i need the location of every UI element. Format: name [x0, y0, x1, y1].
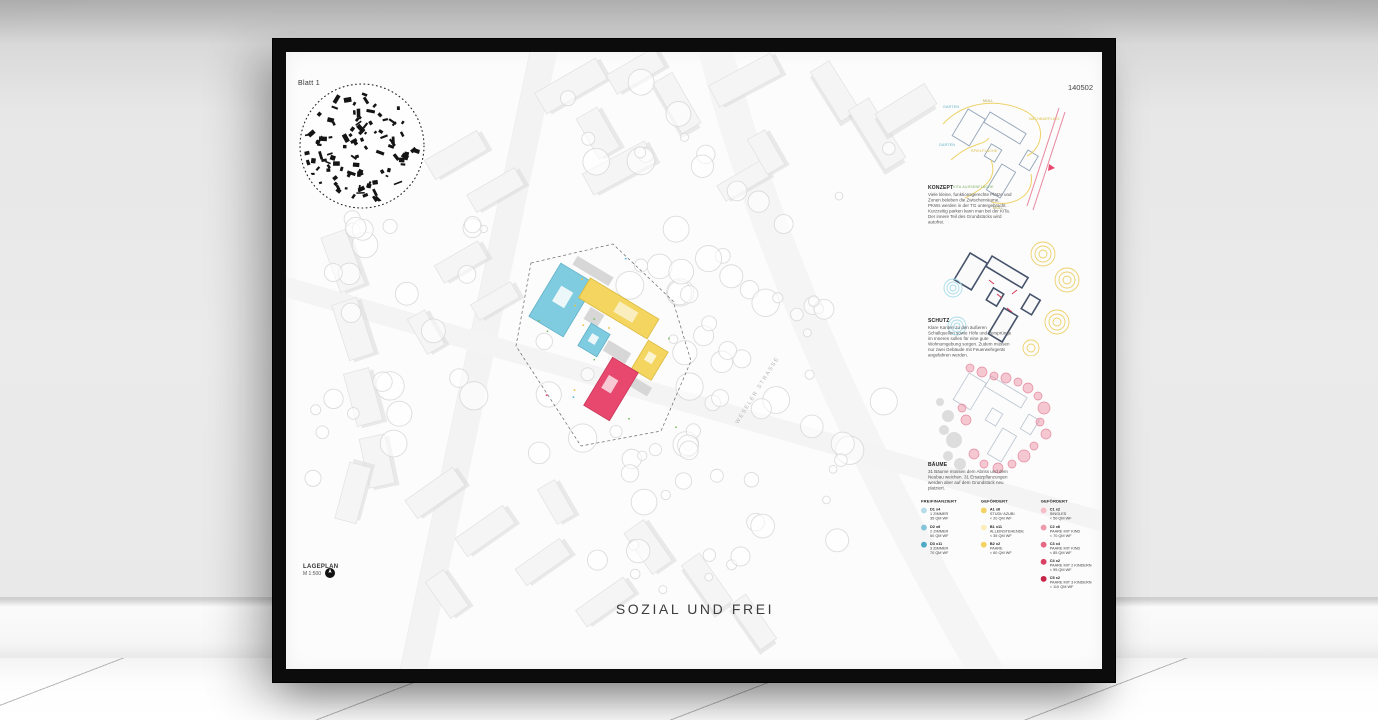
poster-frame: Blatt 1 140502 [272, 38, 1116, 683]
legend-item: C2 x6 PAARE MIT KIND < 70 QM WF [1041, 524, 1101, 538]
figure-ground-block [372, 180, 378, 185]
tree [316, 426, 329, 439]
figure-ground-block [311, 158, 316, 164]
tree [582, 132, 595, 145]
figure-ground-block [333, 161, 340, 165]
plan-speck [608, 327, 610, 329]
legend-dot-icon [921, 508, 927, 514]
tree [383, 219, 397, 233]
tree [679, 441, 698, 460]
tree [823, 496, 831, 504]
tree [661, 490, 670, 499]
concept-label: SPIELFLÄCHE [971, 149, 998, 153]
plan-speck [593, 318, 595, 320]
section-heading: BÄUME [928, 462, 1078, 468]
tree [421, 319, 445, 343]
concept-label: MÜLL [983, 99, 993, 103]
legend-item: C5 x2 PAARE MIT 3 KINDERN < 110 QM WF [1041, 576, 1101, 590]
legend-heading: GEFÖRDERT [1041, 499, 1101, 504]
tree [583, 148, 610, 175]
tree [712, 390, 729, 407]
legend-column-gefoerdert-2: GEFÖRDERT C1 x2 SINGLES < 50 QM WF C2 x6… [1041, 499, 1101, 593]
tree [647, 254, 672, 279]
figure-ground-block [357, 109, 361, 118]
legend-dot-icon [981, 525, 987, 531]
legend-item: D2 x6 2 ZIMMER 50 QM WF [921, 524, 969, 538]
tree [581, 368, 594, 381]
section-heading: KONZEPT [928, 185, 1078, 191]
figure-ground-block [356, 192, 364, 194]
plan-speck [547, 330, 549, 332]
legend-item: C3 x4 PAARE MIT KIND < 85 QM WF [1041, 541, 1101, 555]
tree [324, 389, 343, 408]
tree [805, 370, 814, 379]
tree [703, 549, 716, 562]
tree [659, 586, 667, 594]
tree [324, 264, 342, 282]
section-body: Viele kleine, funktionsgerechte Plätze u… [928, 192, 1013, 225]
tree [883, 142, 896, 155]
tree [616, 271, 644, 299]
legend-dot-icon [921, 525, 927, 531]
tree [346, 217, 367, 238]
legend-item: D3 x11 3 ZIMMER 70 QM WF [921, 541, 969, 555]
tree [373, 372, 392, 391]
tree [803, 329, 811, 337]
tree [681, 286, 698, 303]
tree [673, 341, 697, 365]
tree [649, 444, 661, 456]
concept-label: GARTEN [943, 105, 959, 109]
tree [669, 259, 694, 284]
poster-title: SOZIAL UND FREI [286, 601, 1102, 617]
tree [536, 333, 553, 350]
plan-speck [574, 389, 576, 391]
tree [560, 91, 575, 106]
section-body: 31 Bäume müssen dem Abriss und dem Neuba… [928, 469, 1013, 491]
figure-ground-map [300, 84, 424, 208]
tree [826, 529, 849, 552]
tree [695, 245, 721, 271]
tree [628, 69, 654, 95]
plan-speck [538, 320, 540, 322]
figure-ground-block [353, 110, 356, 115]
legend-dot-icon [981, 508, 987, 514]
tree [460, 382, 488, 410]
plan-speck [546, 394, 548, 396]
concept-label: NACHBARPLATZ [1029, 117, 1060, 121]
plan-speck [583, 324, 585, 326]
legend-dot-icon [1041, 525, 1047, 531]
section-schutz: SCHUTZ Klare Kanten zu den äußeren Schal… [928, 318, 1078, 358]
figure-ground-block [353, 162, 360, 167]
legend-dot-icon [1041, 559, 1047, 565]
concept-label: GARTEN [939, 143, 955, 147]
tree [587, 550, 607, 570]
tree [610, 425, 622, 437]
tree [637, 451, 646, 460]
tree [458, 266, 476, 284]
tree [831, 432, 854, 455]
figure-ground-block [399, 157, 405, 162]
section-konzept: KONZEPT Viele kleine, funktionsgerechte … [928, 185, 1078, 225]
legend-dot-icon [1041, 576, 1047, 582]
legend-dot-icon [981, 542, 987, 548]
tree [801, 415, 824, 438]
figure-ground-block [345, 187, 348, 190]
figure-ground-block [357, 171, 361, 177]
legend-item: C4 x2 PAARE MIT 2 KINDERN < 95 QM WF [1041, 558, 1101, 572]
tree [691, 155, 713, 177]
tree [669, 335, 678, 344]
tree [536, 382, 561, 407]
tree [675, 473, 691, 489]
plan-speck [593, 359, 595, 361]
poster: Blatt 1 140502 [286, 52, 1102, 669]
tree [663, 216, 689, 242]
legend-dot-icon [1041, 508, 1047, 514]
legend-item: A1 x6 STUDI/ AZUBI < 20 QM WF [981, 507, 1029, 520]
tree [635, 147, 646, 158]
tree [528, 442, 550, 464]
north-arrow-icon [324, 567, 336, 579]
tree [569, 424, 597, 452]
legend-column-gefoerdert-1: GEFÖRDERT A1 x6 STUDI/ AZUBI < 20 QM WF … [981, 499, 1029, 593]
tree [305, 470, 321, 486]
tree [710, 469, 723, 482]
legend-item: C1 x2 SINGLES < 50 QM WF [1041, 507, 1101, 520]
legend-column-freifinanziert: FREIFINANZIERT D1 x4 1 ZIMMER 35 QM WF D… [921, 499, 969, 593]
section-body: Klare Kanten zu den äußeren Schallquelle… [928, 325, 1013, 358]
plan-speck [573, 396, 575, 398]
tree [348, 408, 360, 420]
tree [676, 373, 703, 400]
tree [630, 569, 640, 579]
plan-speck [625, 258, 627, 260]
tree [480, 225, 487, 232]
plan-speck [675, 426, 677, 428]
section-heading: SCHUTZ [928, 318, 1078, 324]
tree [626, 539, 649, 562]
legend-item: B2 x2 PAARE < 60 QM WF [981, 541, 1029, 555]
legend-dot-icon [921, 542, 927, 548]
tree [835, 454, 848, 467]
tree [870, 388, 897, 415]
legend-heading: GEFÖRDERT [981, 499, 1029, 504]
tree [705, 573, 713, 581]
tree [631, 489, 657, 515]
plan-speck [628, 418, 630, 420]
tree [731, 547, 750, 566]
tree [680, 133, 688, 141]
plan-speck [668, 338, 670, 340]
figure-ground-block [326, 168, 330, 171]
figure-ground-block [343, 145, 346, 148]
tree [829, 465, 837, 473]
tree [387, 401, 412, 426]
tree [720, 265, 743, 288]
legend-dot-icon [1041, 542, 1047, 548]
tree [311, 405, 321, 415]
tree [380, 430, 407, 457]
figure-ground-block [401, 163, 406, 166]
tree [774, 215, 793, 234]
section-baeume: BÄUME 31 Bäume müssen dem Abriss und dem… [928, 462, 1078, 491]
tree [727, 181, 747, 201]
tree [751, 514, 775, 538]
tree [702, 316, 717, 331]
tree [835, 192, 843, 200]
tree [791, 308, 804, 321]
plan-speck [581, 278, 583, 280]
info-panel: GARTEN MÜLL NACHBARPLATZ GARTEN SPIELFLÄ… [906, 52, 1102, 669]
tree [464, 216, 480, 232]
figure-ground-block [397, 106, 400, 110]
tree [719, 342, 737, 360]
tree [621, 465, 638, 482]
trees-diagram [926, 360, 1086, 478]
tree [808, 296, 819, 307]
figure-ground-block [319, 136, 327, 141]
tree [395, 282, 418, 305]
legend-item: D1 x4 1 ZIMMER 35 QM WF [921, 507, 969, 520]
tree [341, 303, 360, 322]
unit-legend: FREIFINANZIERT D1 x4 1 ZIMMER 35 QM WF D… [921, 499, 1101, 593]
plan-speck [613, 373, 615, 375]
tree [666, 101, 691, 126]
legend-heading: FREIFINANZIERT [921, 499, 969, 504]
legend-item: B1 x11 ALLEINSTEHENDE < 35 QM WF [981, 524, 1029, 538]
bg-building [425, 130, 488, 179]
tree [748, 191, 769, 212]
tree [744, 472, 759, 487]
plan-speck [574, 305, 576, 307]
tree [773, 293, 783, 303]
